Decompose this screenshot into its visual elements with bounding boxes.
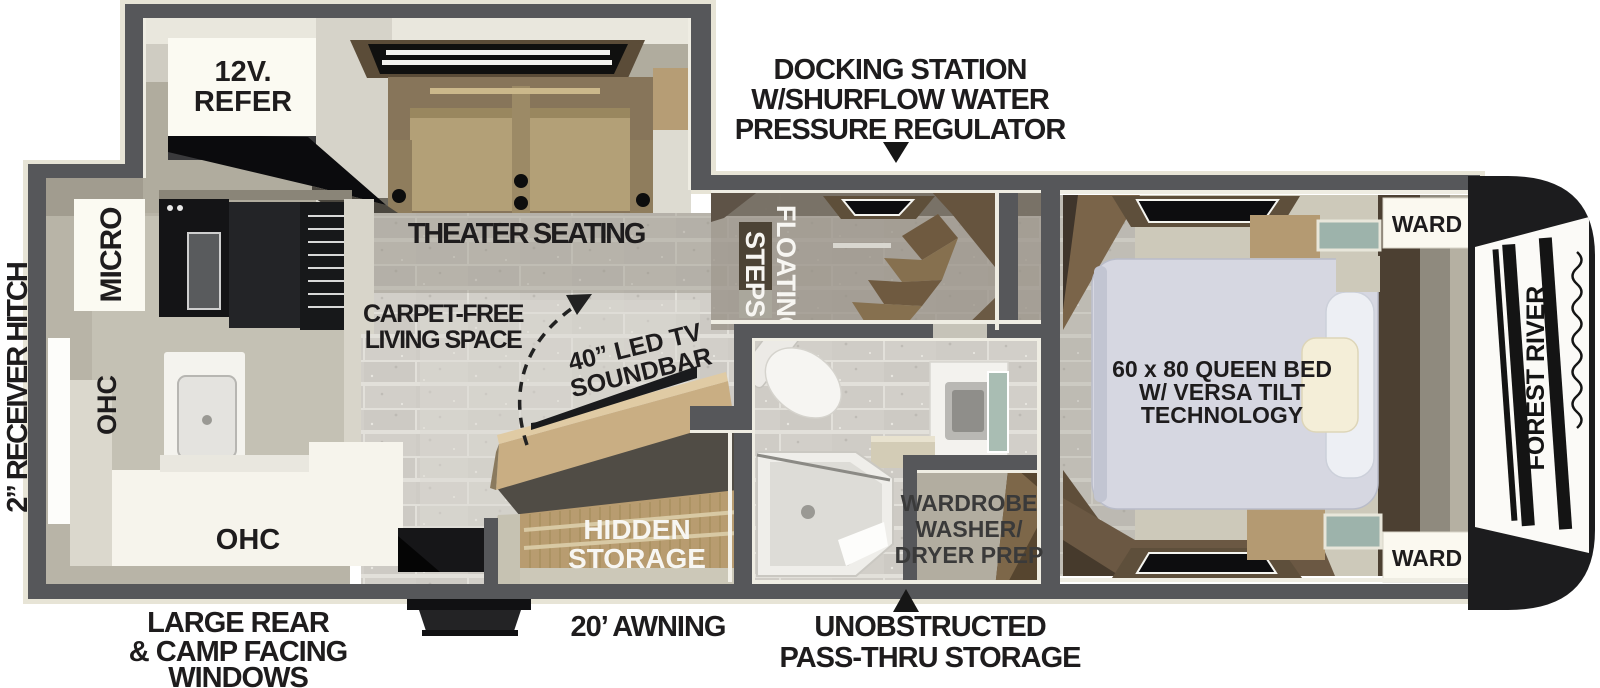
svg-text:THEATER SEATING: THEATER SEATING (408, 218, 645, 250)
svg-text:OHC: OHC (92, 375, 122, 435)
svg-text:FLOATING: FLOATING (771, 205, 801, 337)
svg-text:HIDDEN: HIDDEN (583, 514, 690, 545)
svg-text:WARDROBE: WARDROBE (901, 490, 1038, 516)
svg-text:WARD: WARD (1392, 545, 1462, 571)
svg-text:MICRO: MICRO (95, 207, 128, 303)
svg-text:CARPET-FREE: CARPET-FREE (363, 300, 524, 328)
svg-text:OHC: OHC (216, 524, 281, 556)
svg-text:2” RECEIVER HITCH: 2” RECEIVER HITCH (2, 263, 34, 513)
svg-text:WINDOWS: WINDOWS (168, 662, 308, 688)
svg-text:PASS-THRU STORAGE: PASS-THRU STORAGE (780, 642, 1082, 674)
svg-text:UNOBSTRUCTED: UNOBSTRUCTED (814, 611, 1045, 643)
svg-text:DRYER PREP: DRYER PREP (895, 542, 1044, 568)
svg-text:W/SHURFLOW WATER: W/SHURFLOW WATER (751, 84, 1050, 116)
svg-text:12V.: 12V. (215, 56, 272, 88)
svg-text:LIVING SPACE: LIVING SPACE (365, 326, 522, 354)
svg-text:DOCKING STATION: DOCKING STATION (774, 54, 1027, 86)
svg-text:STEPS: STEPS (740, 231, 770, 317)
svg-text:TECHNOLOGY: TECHNOLOGY (1141, 402, 1303, 428)
svg-text:WARD: WARD (1392, 211, 1462, 237)
svg-text:PRESSURE REGULATOR: PRESSURE REGULATOR (735, 114, 1067, 146)
svg-text:WASHER/: WASHER/ (915, 516, 1023, 542)
svg-text:LARGE REAR: LARGE REAR (147, 607, 330, 639)
svg-text:STORAGE: STORAGE (568, 543, 706, 574)
svg-text:20’ AWNING: 20’ AWNING (571, 611, 726, 643)
svg-text:REFER: REFER (194, 86, 292, 118)
svg-text:FOREST RIVER: FOREST RIVER (1522, 286, 1550, 471)
